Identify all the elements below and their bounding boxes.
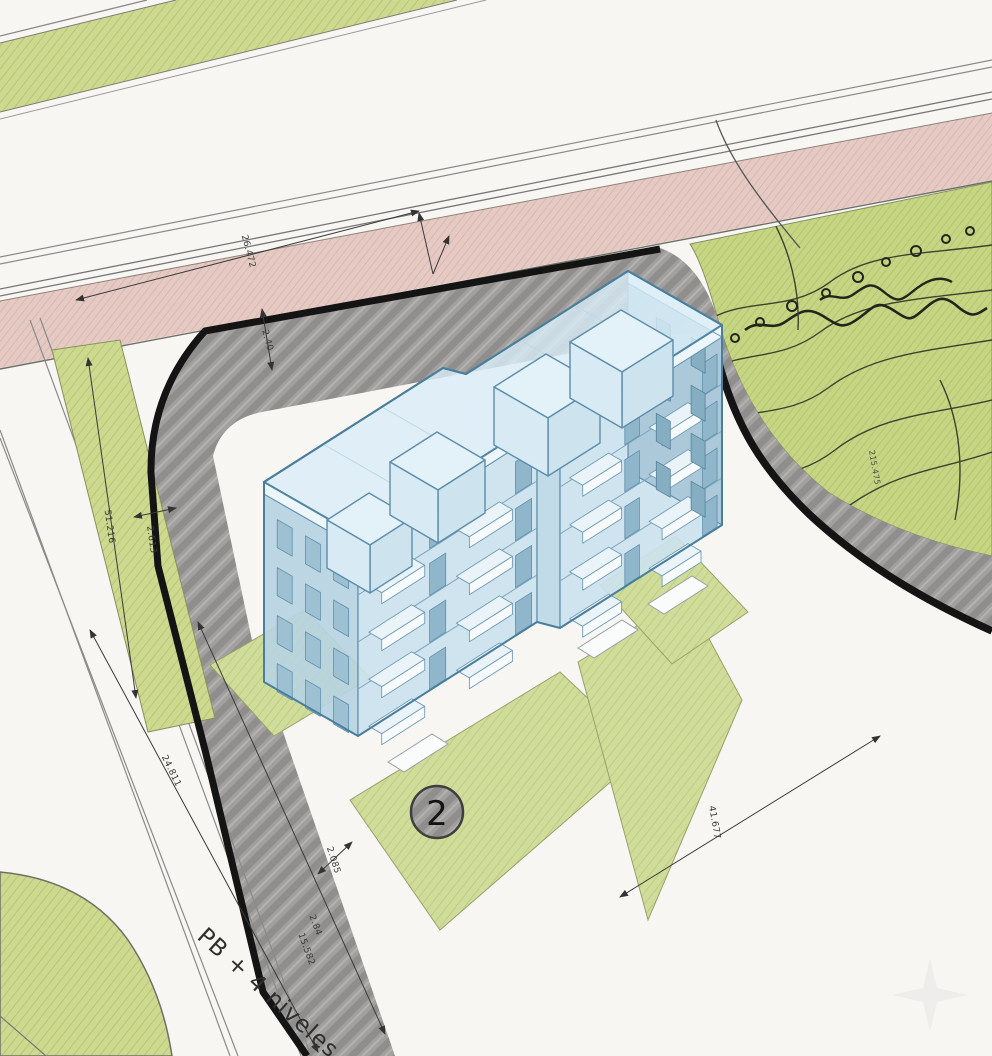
- site-plan-drawing: 215.475 26.472 2.40: [0, 0, 992, 1056]
- site-plan-canvas: 215.475 26.472 2.40: [0, 0, 992, 1056]
- lot-number: 2: [426, 794, 448, 834]
- lot-number-badge: 2: [411, 786, 463, 838]
